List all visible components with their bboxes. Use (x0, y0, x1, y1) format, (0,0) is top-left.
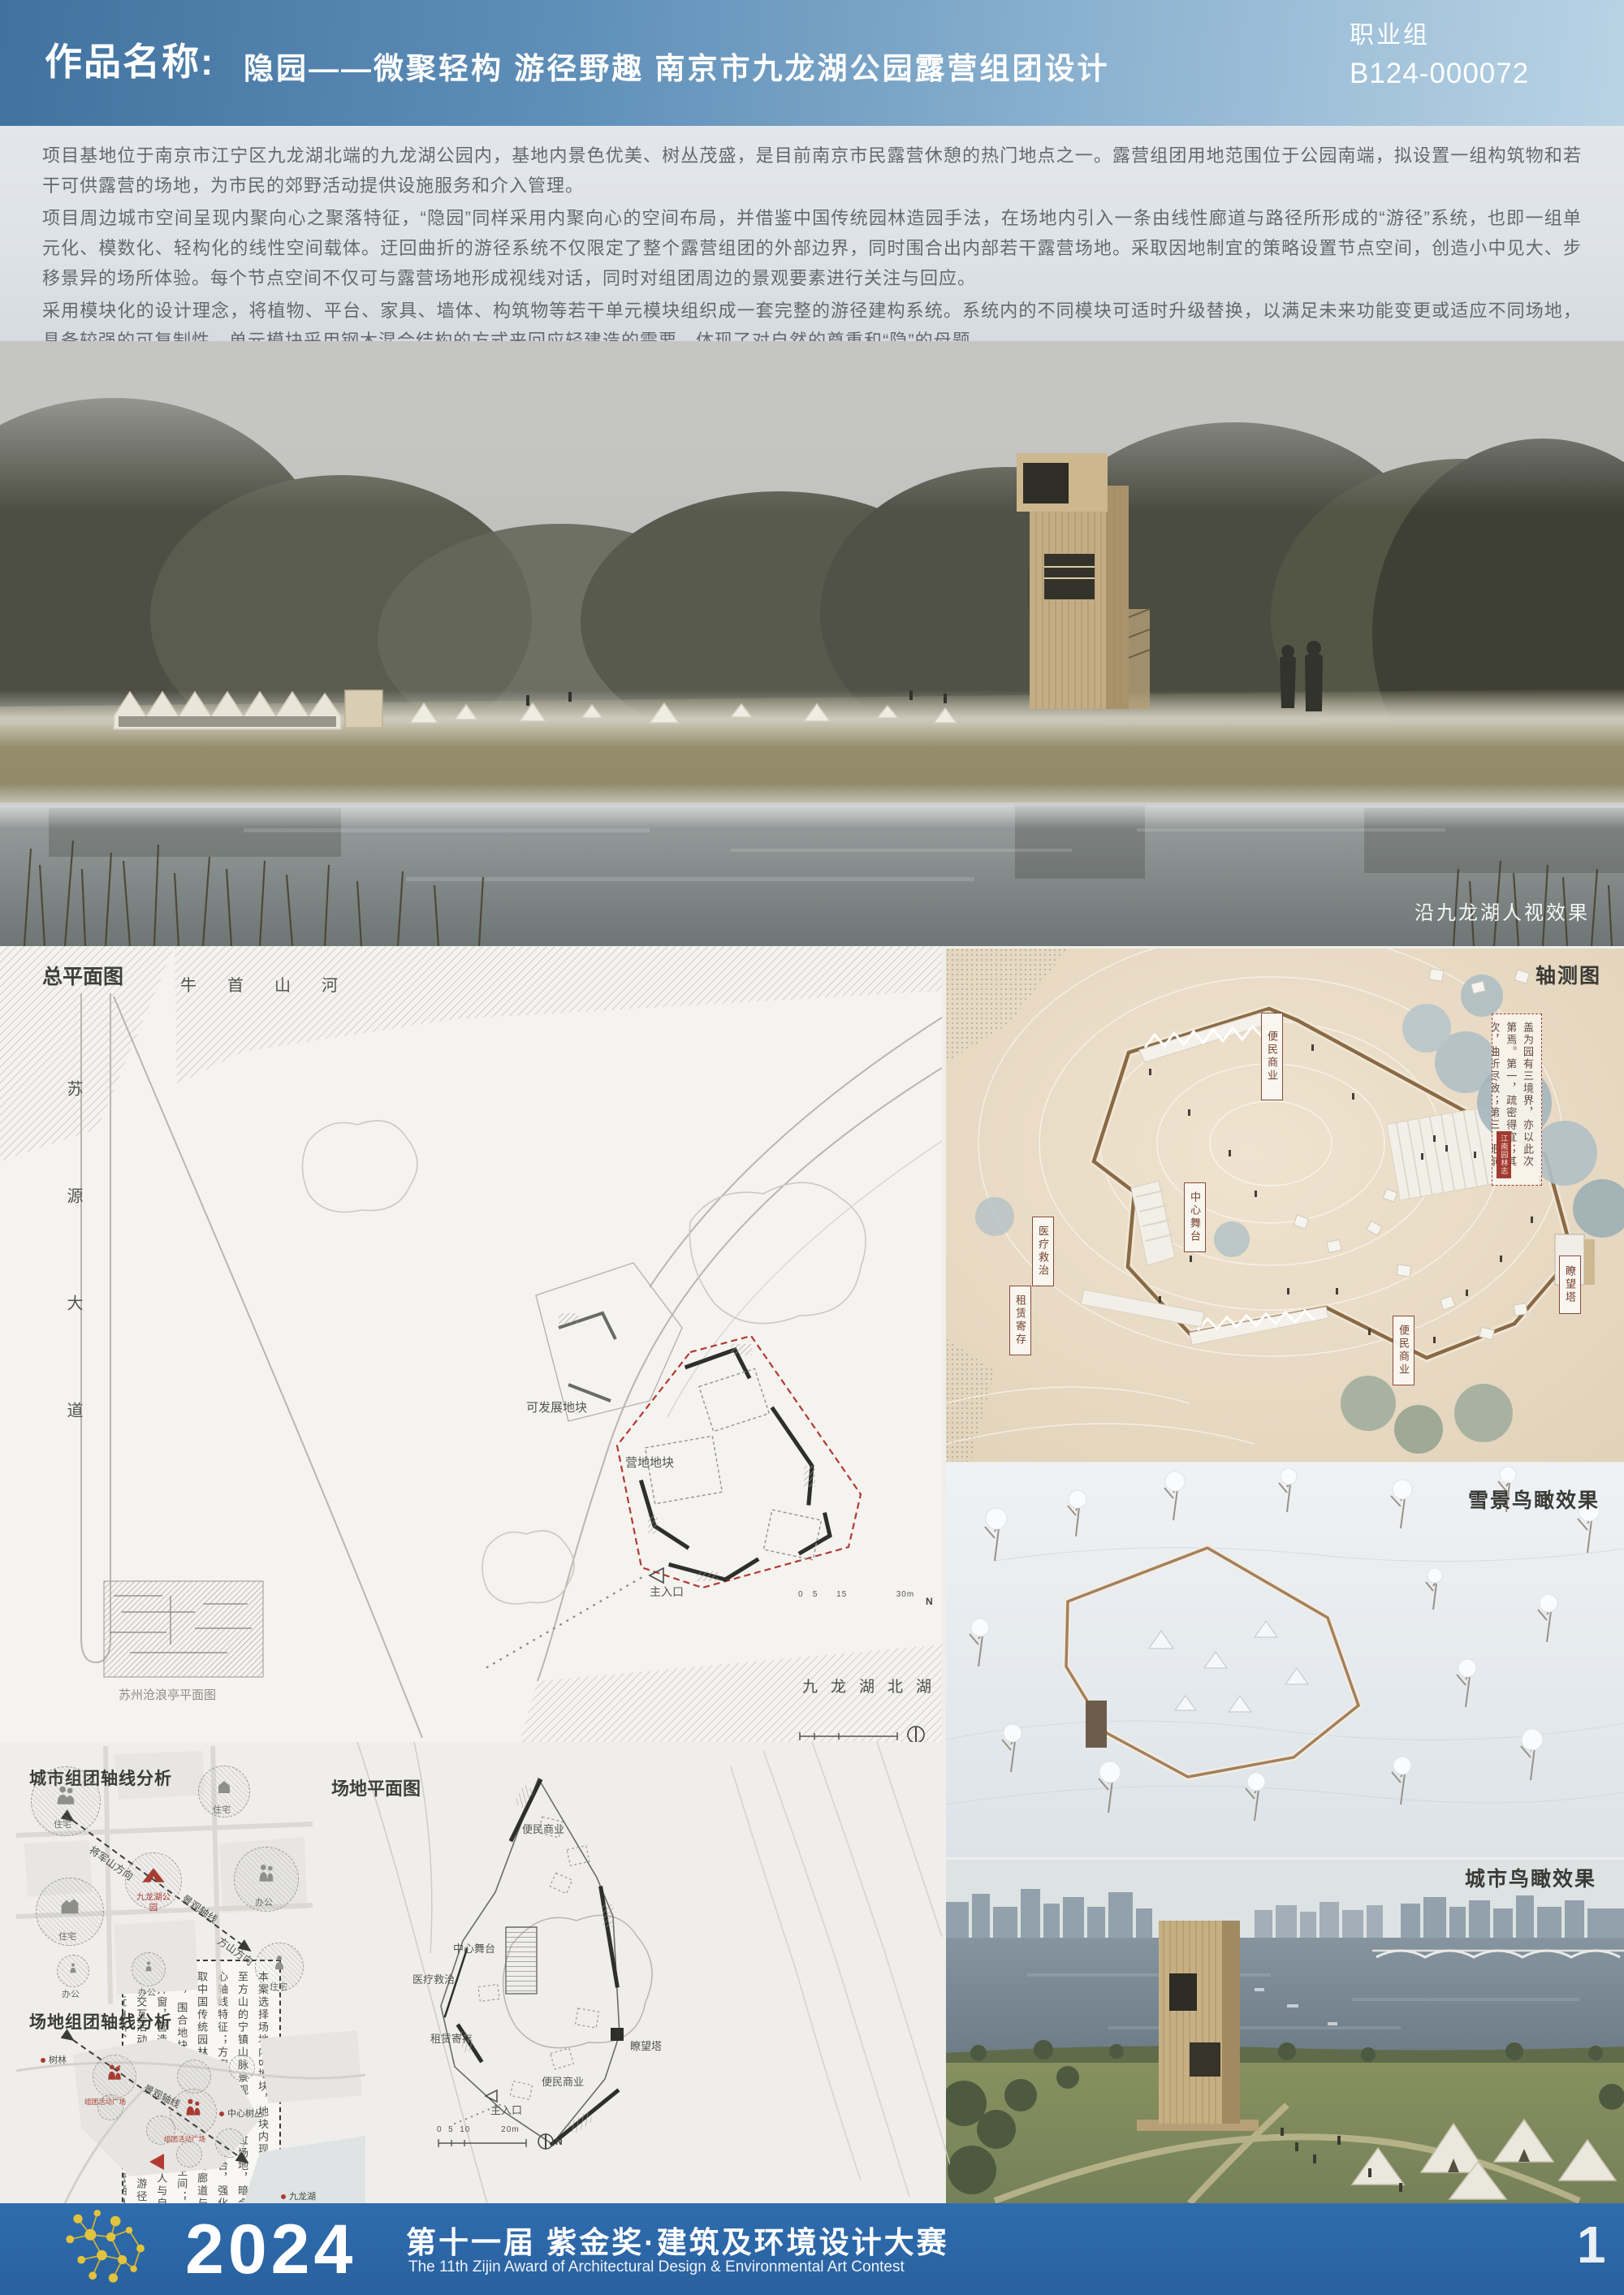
site-plan-title: 场地平面图 (331, 1774, 421, 1800)
city-view-panel: 城市鸟瞰效果 (946, 1860, 1624, 2203)
node-office-3 (132, 1952, 166, 1986)
project-name-label: 作品名称: (45, 32, 214, 86)
grove-node-2 (97, 2094, 123, 2120)
grove-label: 中心树丛 (219, 2107, 263, 2120)
node-label-office-3: 办公 (138, 1986, 156, 1999)
sp-tower-label: 瞭望塔 (630, 2038, 662, 2053)
axon-label-rental: 租赁寄存 (1009, 1286, 1031, 1355)
garden-quote: 盖为园有三境界，亦以此次第焉。第一，疏密得宜；其次，曲折尽致；第三，眼前有景。 … (1492, 1014, 1542, 1186)
hero-scene (0, 341, 1624, 946)
sp-medical-label: 医疗救治 (412, 1971, 455, 1986)
person-icon (67, 1962, 79, 1973)
axon-label-medical: 医疗救治 (1032, 1217, 1054, 1286)
tent-icon (141, 1867, 166, 1883)
city-axis-panel: 城市组团轴线分析 住宅 住宅 住宅 办公 九龙湖公园 办公 办公 (16, 1746, 313, 2004)
entry-info: 职业组 B124-000072 (1350, 18, 1529, 94)
poster-header: 作品名称: 隐园——微聚轻构 游径野趣 南京市九龙湖公园露营组团设计 职业组 B… (0, 0, 1624, 126)
site-plan-drawing (309, 1742, 950, 2203)
node-office-2 (57, 1955, 89, 1987)
entry-code: B124-000072 (1350, 54, 1529, 95)
node-label-residential-2: 住宅 (213, 1803, 231, 1816)
master-plan-title: 总平面图 (42, 961, 123, 990)
sp-entrance-label: 主入口 (490, 2102, 522, 2117)
site-plan-north-icon (538, 2134, 553, 2149)
master-plan-scale-bar: 0 5 15 30m (798, 1590, 914, 1599)
person-icon (271, 1954, 287, 1970)
river-label: 牛首山河 (180, 972, 369, 996)
master-plan-north-label: N (926, 1596, 933, 1607)
site-plan-scale-bar: 0 5 10 20m (437, 2125, 520, 2134)
snow-scene (946, 1463, 1624, 1857)
house-icon (216, 1779, 232, 1795)
node-label-residential-4: 住宅 (270, 1980, 287, 1993)
reference-plan-label: 苏州沧浪亭平面图 (119, 1686, 216, 1703)
node-label-office-2: 办公 (62, 1987, 80, 2000)
people-activity-icon (106, 2064, 123, 2081)
entry-group: 职业组 (1350, 18, 1529, 54)
page-number: 1 (1577, 2215, 1606, 2275)
site-plan-north-label: N (555, 2136, 563, 2147)
grove-node-6 (229, 2055, 255, 2081)
sp-shop-top-label: 便民商业 (522, 1821, 564, 1836)
master-plan-panel: 总平面图 牛首山河 苏源大道 可发展地块 营地地块 主入口 九龙湖北湖 苏州沧浪… (0, 946, 942, 1742)
snow-tower (1086, 1701, 1107, 1748)
person-icon (55, 1784, 76, 1805)
axon-label-shop-bottom: 便民商业 (1393, 1316, 1415, 1385)
axonometric-panel: 轴测图 便民商业 中心舞台 医疗救治 租赁寄存 瞭望塔 便民商业 盖为园有三境界… (946, 949, 1624, 1462)
footer-contest-title-cn: 第十一届 紫金奖·建筑及环境设计大赛 (406, 2218, 949, 2262)
reference-plan (104, 1581, 263, 1677)
house-icon (59, 1895, 80, 1916)
axon-label-stage: 中心舞台 (1184, 1182, 1206, 1252)
people-activity-icon (184, 2098, 203, 2117)
sp-stage-label: 中心舞台 (453, 1940, 495, 1956)
snow-view-panel: 雪景鸟瞰效果 (946, 1463, 1624, 1857)
hero-render: 沿九龙湖人视效果 (0, 341, 1624, 946)
city-scene (946, 1860, 1624, 2203)
grove-node-1 (177, 2059, 211, 2094)
site-plan-panel: 场地平面图 便民商业 中心舞台 医疗救治 租赁寄存 瞭望塔 便民商业 主入口 0… (309, 1742, 950, 2203)
master-plan-drawing (0, 946, 942, 1742)
snow-view-title: 雪景鸟瞰效果 (1468, 1485, 1600, 1514)
sp-shop-bottom-label: 便民商业 (542, 2073, 584, 2089)
site-axis-title: 场地组团轴线分析 (29, 2009, 172, 2034)
node-label-park: 九龙湖公园 (135, 1892, 172, 1913)
node-label-office-1: 办公 (255, 1895, 273, 1908)
developable-plot-label: 可发展地块 (526, 1398, 587, 1415)
project-description: 项目基地位于南京市江宁区九龙湖北端的九龙湖公园内，基地内景色优美、树丛茂盛，是目… (0, 126, 1624, 341)
plaza-node-1 (93, 2055, 136, 2098)
camp-plot-label: 营地地块 (625, 1454, 674, 1471)
lake-dot-icon (281, 2194, 286, 2199)
description-paragraph-1: 项目基地位于南京市江宁区九龙湖北端的九龙湖公园内，基地内景色优美、树丛茂盛，是目… (42, 140, 1582, 201)
entrance-arrow-icon (650, 1568, 663, 1583)
axon-title: 轴测图 (1535, 960, 1601, 989)
grove-node-5 (215, 2129, 244, 2158)
footer-year: 2024 (185, 2210, 356, 2290)
grove-node-4 (176, 2142, 202, 2167)
node-label-residential-1: 住宅 (54, 1817, 71, 1830)
road-label: 苏源大道 (62, 1080, 85, 1509)
footer-contest-title-en: The 11th Zijin Award of Architectural De… (408, 2258, 905, 2276)
hero-caption: 沿九龙湖人视效果 (1415, 897, 1590, 925)
city-view-title: 城市鸟瞰效果 (1465, 1863, 1596, 1892)
tower-block (611, 2028, 624, 2041)
award-logo-icon (45, 2210, 167, 2289)
grove-node-3 (146, 2116, 175, 2145)
person-icon (257, 1863, 276, 1882)
person-icon (143, 1960, 154, 1972)
poster-footer: 2024 第十一届 紫金奖·建筑及环境设计大赛 The 11th Zijin A… (0, 2203, 1624, 2295)
lake-label: 九龙湖北湖 (802, 1675, 944, 1696)
project-title: 隐园——微聚轻构 游径野趣 南京市九龙湖公园露营组团设计 (244, 44, 1110, 88)
description-paragraph-2: 项目周边城市空间呈现内聚向心之聚落特征，“隐园”同样采用内聚向心的空间布局，并借… (42, 203, 1582, 293)
node-label-residential-3: 住宅 (58, 1930, 76, 1943)
axon-label-tower: 瞭望塔 (1559, 1256, 1581, 1314)
axon-label-shop-top: 便民商业 (1261, 1013, 1283, 1100)
legend-dot-icon (41, 2058, 45, 2063)
sp-rental-label: 租赁寄存 (430, 2030, 473, 2046)
grove-dot-icon (219, 2111, 224, 2116)
seal-stamp: 江南园林志 (1497, 1131, 1511, 1178)
competition-poster: 作品名称: 隐园——微聚轻构 游径野趣 南京市九龙湖公园露营组团设计 职业组 B… (0, 0, 1624, 2295)
legend-grove: 树林 (41, 2053, 67, 2066)
main-entrance-label: 主入口 (650, 1584, 684, 1600)
